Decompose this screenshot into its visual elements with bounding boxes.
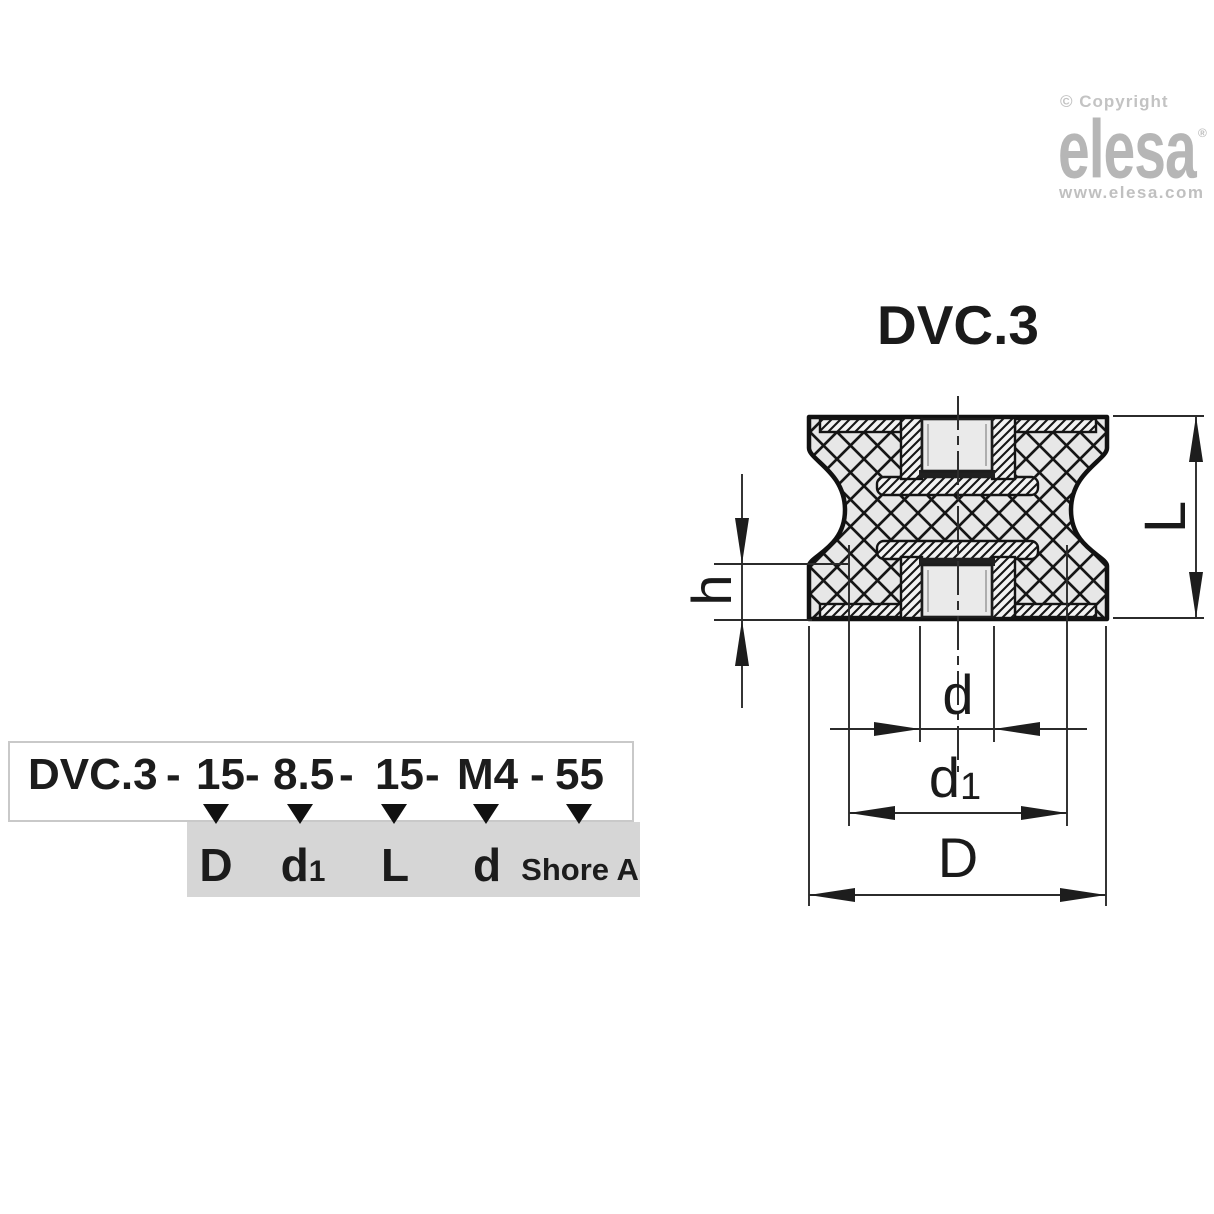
down-arrow-icon [566,804,592,824]
code-separator: - [245,750,260,800]
arrow-down-icon [735,518,749,564]
code-separator: - [425,750,440,800]
code-separator: - [166,750,181,800]
legend-label-d1-sub: 1 [309,855,326,888]
down-arrow-icon [203,804,229,824]
down-arrow-icon [473,804,499,824]
code-separator: - [339,750,354,800]
dim-label-L: L [1133,501,1198,533]
legend-label-d1-base: d [281,839,309,891]
legend-label-L: L [381,838,409,892]
dim-label-d1: d1 [929,746,981,809]
code-separator: - [530,750,545,800]
down-arrow-icon [287,804,313,824]
code-part-L: 15 [375,750,424,800]
legend-label-shore-a: Shore A [521,852,639,888]
code-part-shore: 55 [555,750,604,800]
arrow-up-icon [735,620,749,666]
code-part-d1: 8.5 [273,750,334,800]
dim-label-d: d [942,663,973,726]
down-arrow-icon [381,804,407,824]
arrow-right-icon [874,722,920,736]
arrow-up-icon [1189,416,1203,462]
technical-drawing: DVC.3 [0,0,1214,1214]
arrow-down-icon [1189,572,1203,618]
code-part-series: DVC.3 [28,750,158,800]
arrow-left-icon [994,722,1040,736]
dim-label-d1-sub: 1 [960,766,981,808]
arrow-right-icon [1021,806,1067,820]
dim-label-h: h [680,574,743,605]
legend-label-D: D [199,838,232,892]
legend-label-d: d [473,838,501,892]
arrow-left-icon [809,888,855,902]
dim-label-d1-base: d [929,746,960,809]
drawing-title: DVC.3 [877,294,1039,356]
arrow-right-icon [1060,888,1106,902]
code-part-thread: M4 [457,750,518,800]
dim-label-D: D [938,826,978,889]
page: © Copyright elesa ® www.elesa.com DVC.3 [0,0,1214,1214]
arrow-left-icon [849,806,895,820]
legend-label-d1: d1 [281,838,326,892]
code-part-D: 15 [196,750,245,800]
